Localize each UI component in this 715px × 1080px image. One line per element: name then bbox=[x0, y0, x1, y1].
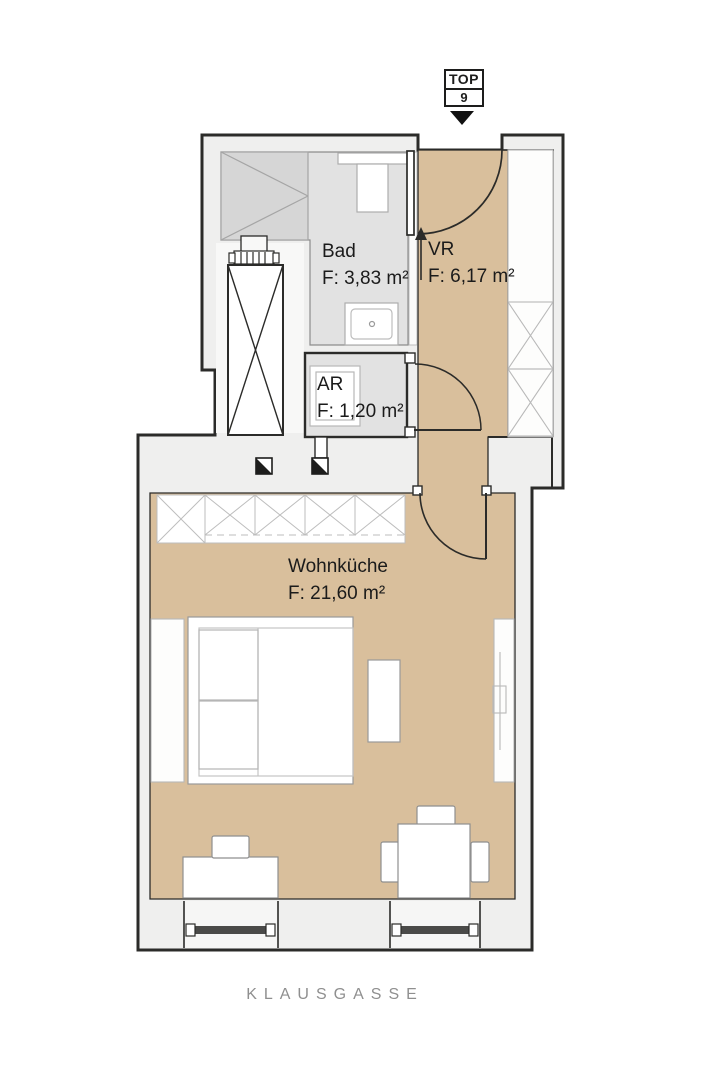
window-left bbox=[184, 901, 278, 948]
room-label-ar: AR F: 1,20 m² bbox=[317, 371, 404, 425]
room-area: F: 1,20 m² bbox=[317, 398, 404, 425]
entrance-door-leaf bbox=[407, 151, 414, 235]
vr-wardrobe bbox=[508, 150, 553, 437]
room-name: Wohnküche bbox=[288, 553, 388, 580]
duct-stub bbox=[315, 437, 327, 458]
window-right bbox=[390, 901, 480, 948]
chair-left bbox=[381, 842, 399, 882]
room-area: F: 3,83 m² bbox=[322, 265, 409, 292]
unit-badge-top: TOP bbox=[446, 71, 482, 90]
room-name: VR bbox=[428, 236, 515, 263]
street-label: KLAUSGASSE bbox=[138, 986, 532, 1004]
room-label-bad: Bad F: 3,83 m² bbox=[322, 238, 409, 292]
room-area: F: 6,17 m² bbox=[428, 263, 515, 290]
room-name: Bad bbox=[322, 238, 409, 265]
chair-right bbox=[471, 842, 489, 882]
nightstand bbox=[368, 660, 400, 742]
bed bbox=[188, 617, 353, 784]
chimney-shaft bbox=[228, 265, 283, 435]
duct-marker-icon bbox=[256, 458, 272, 474]
duct-marker-icon bbox=[312, 458, 328, 474]
room-area: F: 21,60 m² bbox=[288, 580, 388, 607]
duct-stub bbox=[241, 236, 267, 252]
sink bbox=[345, 303, 398, 345]
room-name: AR bbox=[317, 371, 404, 398]
desk-chair bbox=[212, 836, 249, 858]
valve-fitting bbox=[229, 251, 279, 264]
floorplan-page: TOP 9 Bad F: 3,83 m² VR F: 6,17 m² AR F:… bbox=[0, 0, 715, 1080]
closet-strip bbox=[151, 619, 184, 782]
unit-badge-number: 9 bbox=[446, 90, 482, 105]
floorplan-drawing bbox=[0, 0, 715, 1080]
room-label-wohnkueche: Wohnküche F: 21,60 m² bbox=[288, 553, 388, 607]
room-label-vr: VR F: 6,17 m² bbox=[428, 236, 515, 290]
unit-badge: TOP 9 bbox=[444, 69, 484, 107]
kitchen-counter bbox=[157, 495, 405, 543]
sideboard bbox=[493, 619, 514, 782]
entrance-direction-icon bbox=[450, 111, 474, 125]
table-top bbox=[398, 824, 470, 898]
chair-top bbox=[417, 806, 455, 825]
shower bbox=[221, 152, 308, 240]
